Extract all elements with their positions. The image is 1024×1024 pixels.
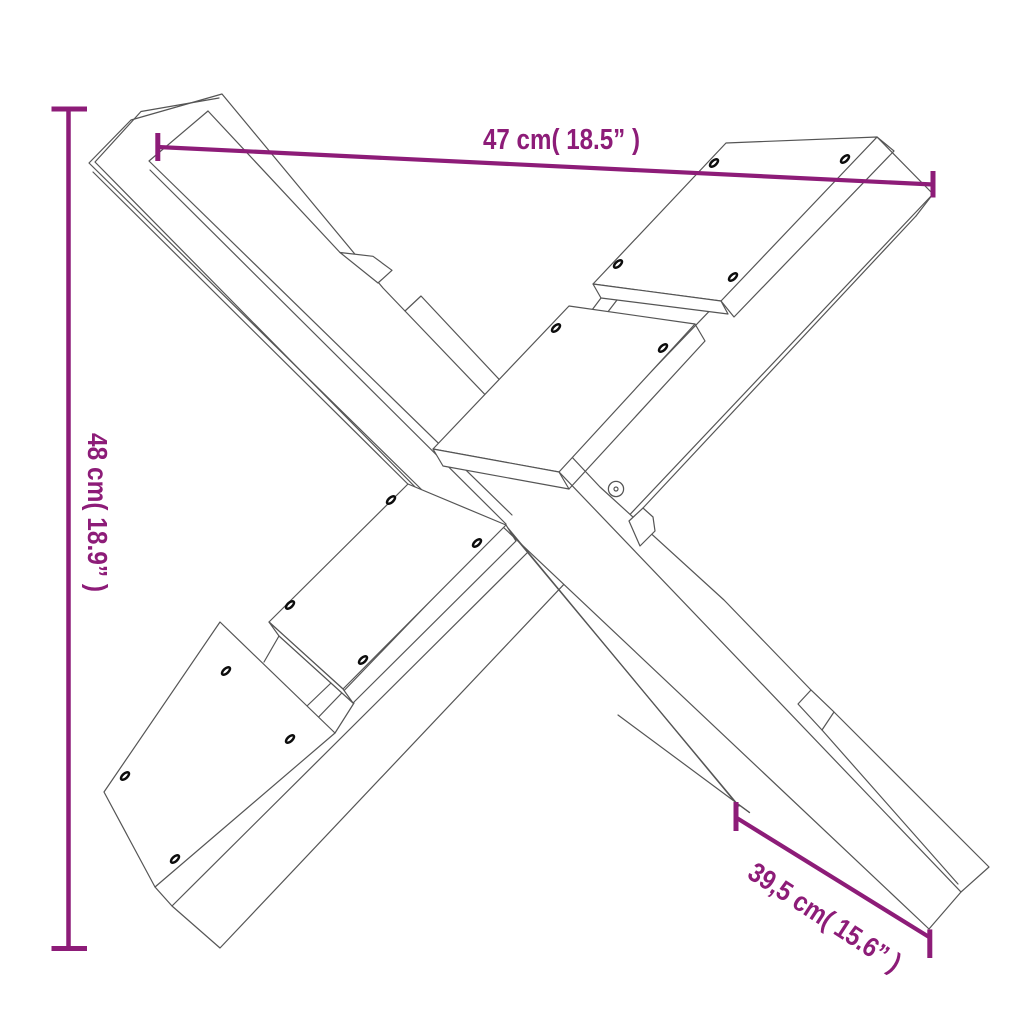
svg-text:47 cm( 18.5” ): 47 cm( 18.5” )	[483, 124, 640, 156]
svg-text:48 cm( 18.9” ): 48 cm( 18.9” )	[82, 433, 113, 592]
